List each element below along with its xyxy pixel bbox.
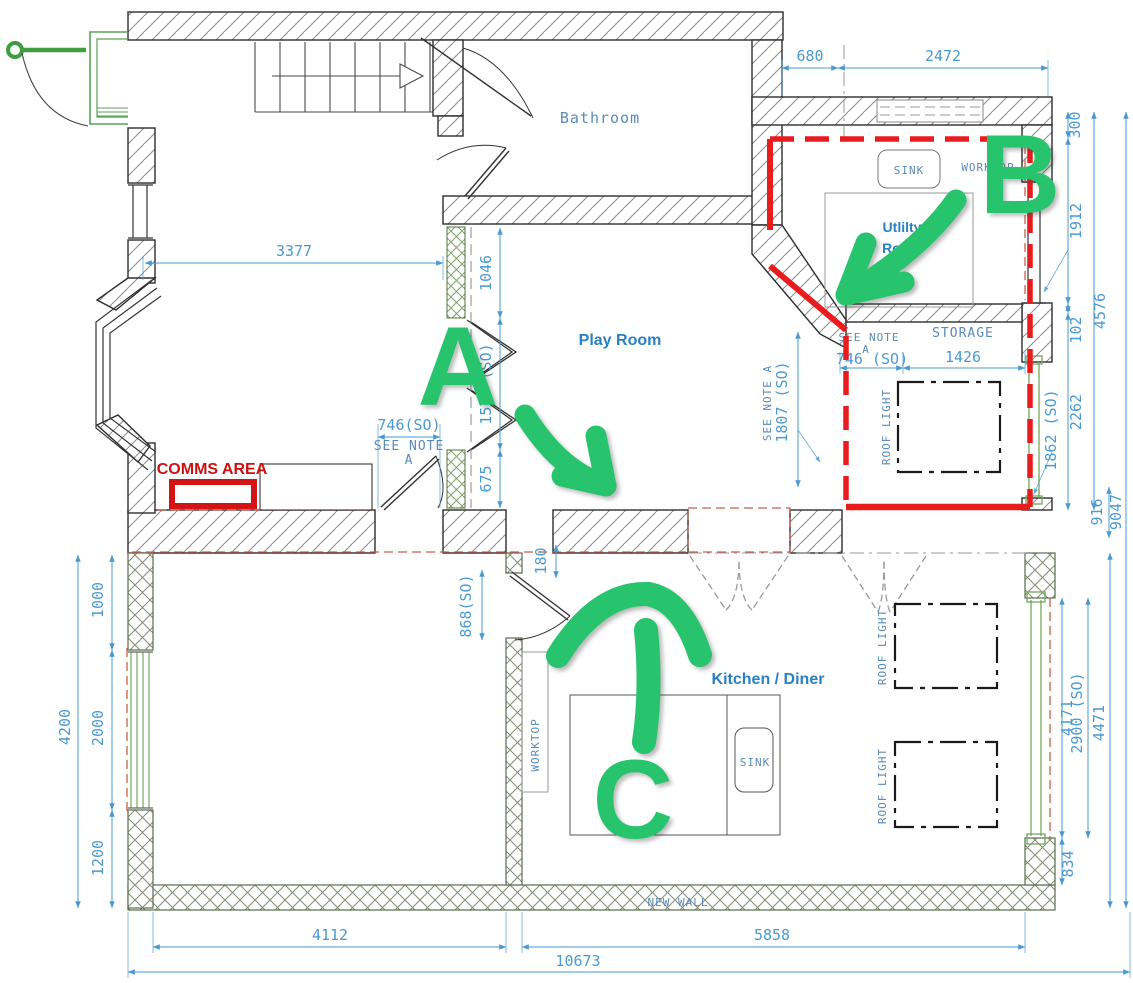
label-roof-light-kitchen-1: ROOF LIGHT [876,609,889,685]
wall-mid-pier [790,510,842,553]
comms-area-box [172,482,254,506]
arrow-c [558,594,700,742]
wall-top [128,12,783,40]
bathroom-door [437,145,509,199]
roof-light-kitchen1-outline [895,604,997,688]
wall-bottom-new [128,885,1055,910]
room-label-storage: STORAGE [932,326,994,341]
dim-916: 916 [1088,498,1106,525]
dim-102: 102 [1067,316,1085,343]
porch-outline [90,32,128,124]
dim-1200: 1200 [89,840,107,876]
dim-5858: 5858 [754,926,790,944]
wall-mid-center [443,510,506,553]
lower-left-window [128,652,153,808]
arrow-b [846,200,956,295]
dim-300: 300 [1066,111,1084,138]
wall-right-mid [1022,303,1052,362]
dim-1912: 1912 [1067,203,1085,239]
roof-light-kitchen2-outline [895,742,997,827]
wall-mid-left [128,510,375,553]
wall-kitchen-divider-jamb [506,553,522,573]
roof-light-storage-outline [898,382,1000,472]
dim-868: 868(SO) [457,574,475,637]
label-new-wall: NEW WALL [648,896,709,909]
wall-playroom-strip-lower [447,450,465,508]
floor-plan-drawing: 680 2472 3377 1046 1578 (SO) 675 746(SO)… [0,0,1133,983]
dim-10673: 10673 [555,952,600,970]
dim-3377: 3377 [276,242,312,260]
wall-lower-left-upper [128,553,153,650]
roof-lights [895,382,1000,827]
dim-675: 675 [477,465,495,492]
dim-1807: 1807 (SO) [773,361,791,442]
label-roof-light-storage: ROOF LIGHT [880,389,893,465]
room-label-play-room: Play Room [579,332,662,349]
arrow-a [525,415,606,486]
wall-stair-side [433,40,463,116]
stairs [255,42,433,112]
label-sink-kitchen: SINK [740,756,771,769]
dim-2262: 2262 [1067,394,1085,430]
hall-window [128,185,153,238]
wall-bay-top-splay [97,278,155,310]
utility-high-window [877,100,983,122]
dim-2900: 2900 (SO) [1068,672,1086,753]
dim-9047: 9047 [1107,494,1125,530]
comms-cupboard [260,464,372,510]
see-note-door-line2: A [405,453,414,468]
dim-1000: 1000 [89,582,107,618]
wall-mid-right [553,510,688,553]
label-worktop-kitchen: WORKTOP [529,718,542,771]
marker-c: C [593,737,674,862]
dim-2472: 2472 [925,47,961,65]
wall-kitchen-right-lower [1025,838,1055,885]
label-sink-utility: SINK [894,164,925,177]
wall-bathroom-bottom [443,196,755,224]
front-entrance [8,32,128,126]
dim-4471: 4471 [1090,705,1108,741]
kitchen-door [510,572,570,640]
dim-1426: 1426 [945,348,981,366]
dim-1862: 1862 (SO) [1042,389,1060,470]
dim-680: 680 [796,47,823,65]
french-doors-proposed [690,556,926,612]
label-roof-light-kitchen-2: ROOF LIGHT [876,748,889,824]
room-label-kitchen-diner: Kitchen / Diner [712,671,825,688]
dim-1046: 1046 [477,255,495,291]
front-door-handle [8,43,22,57]
dim-4112: 4112 [312,926,348,944]
wall-lower-left-lower [128,810,153,908]
kitchen-right-window [1027,592,1045,844]
wall-kitchen-right-upper [1025,553,1055,598]
dim-180: 180 [532,547,550,574]
see-note-door-line1: SEE NOTE [374,439,445,454]
dim-4200: 4200 [56,709,74,745]
wall-kitchen-divider [506,638,522,885]
front-door-swing [22,53,88,126]
dim-4576: 4576 [1091,293,1109,329]
wall-hall-left-upper [128,128,155,183]
dim-834: 834 [1059,850,1077,877]
wall-hall-left-lower [128,240,155,283]
dim-2000: 2000 [89,710,107,746]
floor-plan-page: 680 2472 3377 1046 1578 (SO) 675 746(SO)… [0,0,1133,983]
comms-area-label: COMMS AREA [157,461,268,478]
stair-direction-arrow [400,64,423,88]
marker-a: A [418,304,499,429]
room-label-bathroom: Bathroom [560,109,640,127]
wall-bath-left-jamb [438,116,463,136]
marker-b: B [980,112,1061,237]
